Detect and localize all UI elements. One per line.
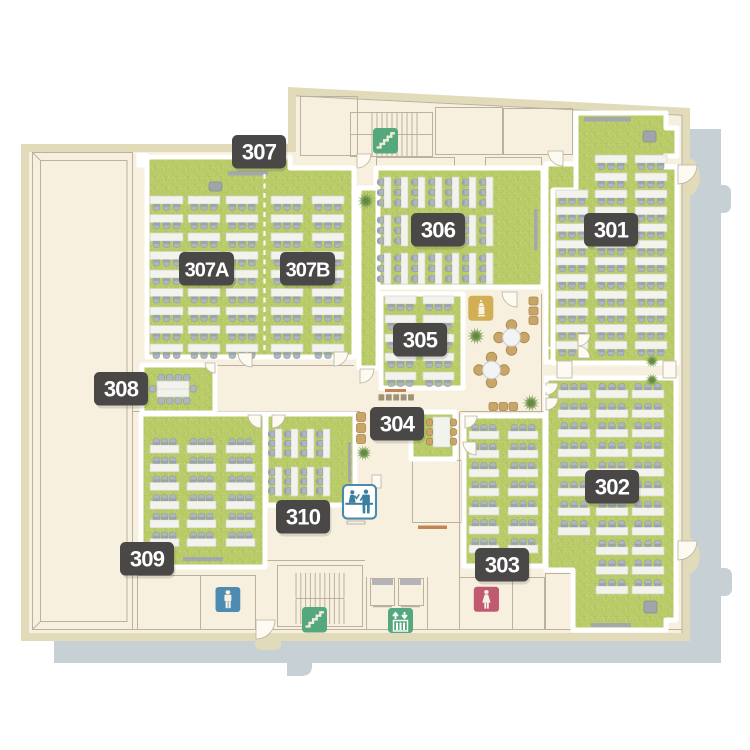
- svg-text:307: 307: [242, 140, 277, 165]
- svg-text:302: 302: [595, 475, 630, 500]
- svg-text:308: 308: [104, 377, 139, 402]
- svg-text:306: 306: [421, 218, 456, 243]
- svg-text:307A: 307A: [185, 260, 229, 282]
- svg-text:301: 301: [594, 218, 629, 243]
- svg-text:303: 303: [485, 553, 520, 578]
- svg-text:307B: 307B: [286, 260, 330, 282]
- svg-text:304: 304: [380, 412, 416, 437]
- svg-text:310: 310: [286, 505, 321, 530]
- svg-text:305: 305: [403, 328, 438, 353]
- svg-text:309: 309: [130, 547, 165, 572]
